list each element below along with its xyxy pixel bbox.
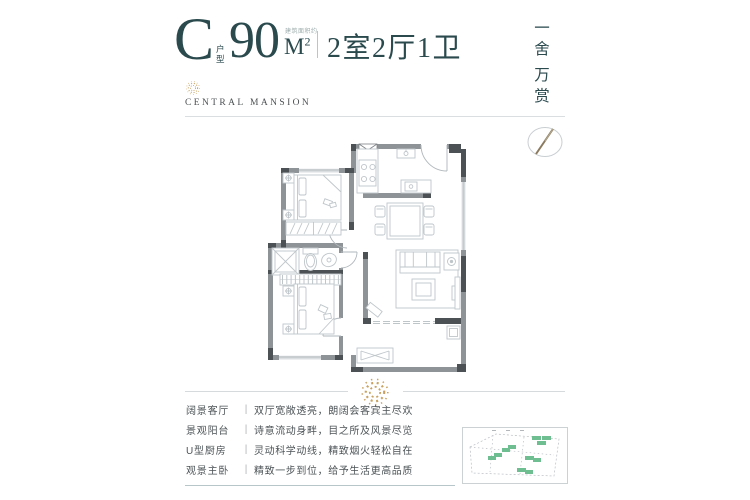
- floorplan-drawing: [263, 140, 478, 375]
- divider-line-right: [403, 391, 565, 392]
- rooms-summary: 2室2厅1卫: [327, 26, 462, 66]
- floorplan-poster: C 户型 90 建筑面积约 M2 2室2厅1卫 CENTRAL MANSION …: [0, 0, 750, 500]
- feature-row: U型厨房 | 灵动科学动线，精致烟火轻松自在: [186, 439, 486, 459]
- bedroom-secondary: [283, 173, 341, 235]
- feature-description: 灵动科学动线，精致烟火轻松自在: [254, 442, 413, 457]
- feature-separator: |: [238, 404, 254, 415]
- brand-name: CENTRAL MANSION: [185, 98, 311, 108]
- feature-description: 精致一步到位，给予生活更高品质: [254, 462, 413, 477]
- feature-separator: |: [238, 444, 254, 455]
- sunburst-logo-icon: [185, 80, 201, 96]
- feature-row: 观景主卧 | 精致一步到位，给予生活更高品质: [186, 459, 486, 479]
- balcony: [357, 322, 460, 364]
- area-unit-exponent: 2: [304, 34, 310, 48]
- feature-label: 景观阳台: [186, 422, 238, 437]
- feature-list: 阔景客厅 | 双厅宽敞透亮，朗阔会客宾主尽欢 景观阳台 | 诗意流动身畔，目之所…: [186, 399, 486, 479]
- kitchen: [357, 149, 431, 193]
- feature-description: 双厅宽敞透亮，朗阔会客宾主尽欢: [254, 402, 413, 417]
- feature-separator: |: [238, 424, 254, 435]
- area-unit: M2: [284, 34, 310, 60]
- header-divider: [317, 31, 318, 58]
- feature-separator: |: [238, 464, 254, 475]
- slogan-char: 一: [533, 20, 551, 37]
- area-unit-letter: M: [284, 34, 304, 59]
- area-value: 90: [229, 14, 279, 68]
- feature-description: 诗意流动身畔，目之所及风景尽览: [254, 422, 413, 437]
- header-rule: [185, 116, 565, 117]
- closet: [280, 274, 341, 285]
- feature-label: U型厨房: [186, 442, 238, 457]
- feature-row: 景观阳台 | 诗意流动身畔，目之所及风景尽览: [186, 419, 486, 439]
- unit-type-letter: C: [174, 8, 214, 70]
- feature-label: 阔景客厅: [186, 402, 238, 417]
- bedroom-master: [283, 284, 334, 334]
- feature-row: 阔景客厅 | 双厅宽敞透亮，朗阔会客宾主尽欢: [186, 399, 486, 419]
- unit-type-suffix: 户型: [216, 44, 226, 64]
- bottom-rule: [185, 485, 455, 486]
- dining-area: [375, 203, 434, 239]
- slogan-char: 赏: [533, 88, 551, 105]
- slogan-vertical: 一 舍 万 赏: [533, 20, 551, 109]
- feature-label: 观景主卧: [186, 462, 238, 477]
- slogan-char: 万: [533, 67, 551, 84]
- site-map: [462, 427, 568, 484]
- divider-line-left: [185, 391, 348, 392]
- hall-console: [366, 302, 382, 317]
- slogan-char: 舍: [533, 41, 551, 58]
- compass-icon: [522, 122, 568, 164]
- living-room: [396, 250, 460, 309]
